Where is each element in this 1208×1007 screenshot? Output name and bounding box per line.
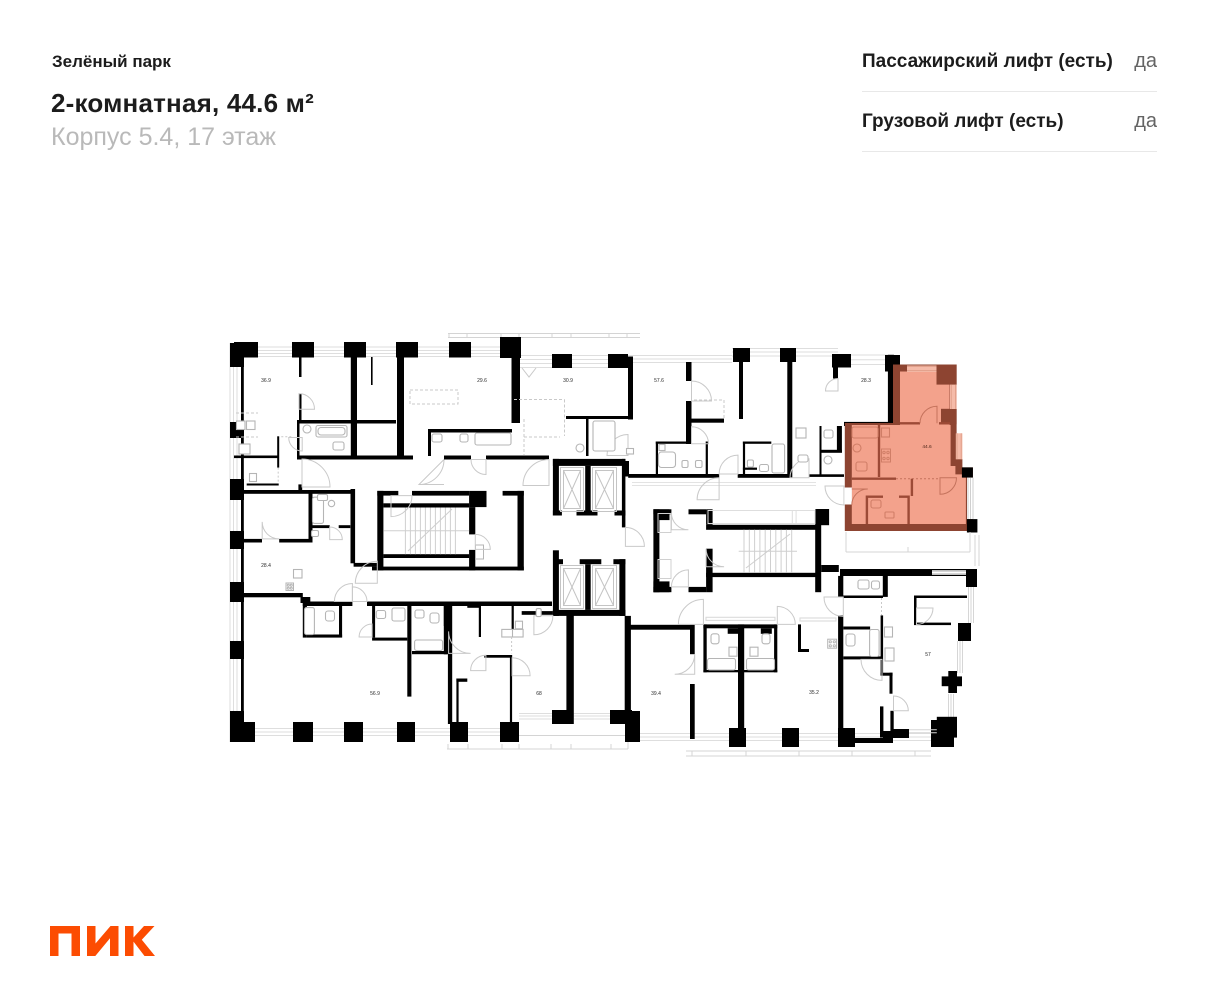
svg-text:28.3: 28.3 (861, 378, 871, 384)
svg-text:28.4: 28.4 (261, 563, 271, 569)
svg-text:57: 57 (925, 652, 931, 658)
svg-text:68: 68 (536, 691, 542, 697)
svg-text:30.9: 30.9 (563, 378, 573, 384)
svg-text:39.4: 39.4 (651, 691, 661, 697)
svg-text:35.2: 35.2 (809, 690, 819, 696)
svg-text:29.6: 29.6 (477, 378, 487, 384)
svg-text:44.6: 44.6 (922, 444, 932, 450)
svg-text:56.9: 56.9 (370, 691, 380, 697)
svg-text:36.9: 36.9 (261, 378, 271, 384)
svg-text:57.6: 57.6 (654, 378, 664, 384)
